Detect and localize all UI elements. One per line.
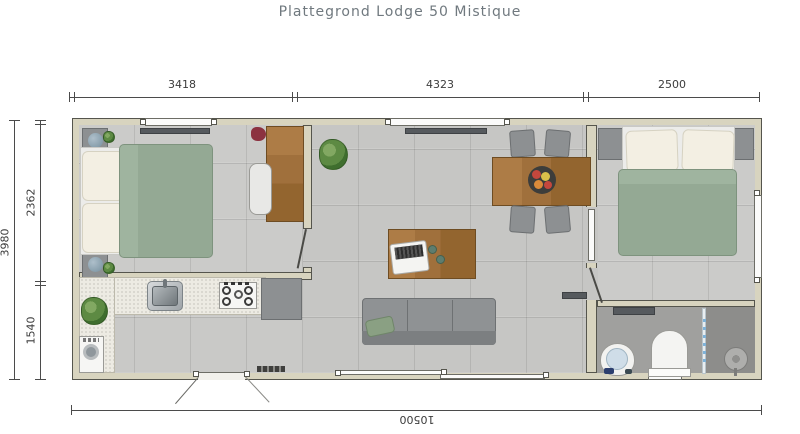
dim-line-top	[70, 97, 760, 98]
wall-bathroom-top	[597, 300, 755, 307]
window-jamb	[754, 190, 760, 196]
tick	[35, 285, 46, 286]
toilet-cistern	[648, 368, 691, 377]
sofa-seam	[452, 300, 453, 331]
dim-line-left-segments	[40, 120, 41, 380]
wall-bedroom-left-living	[303, 125, 312, 229]
window-jamb	[385, 119, 391, 125]
window-jamb	[193, 371, 199, 377]
burner	[222, 297, 231, 306]
window-bedroom-right	[754, 195, 762, 278]
dim-top-1: 3418	[152, 78, 212, 91]
bath-accessory	[625, 369, 632, 374]
burner	[222, 286, 231, 295]
washer-controls	[83, 338, 99, 342]
desk-chair	[249, 163, 272, 215]
bath-accessory	[604, 368, 614, 374]
tick	[588, 92, 589, 102]
dining-chair	[544, 129, 571, 158]
tick	[9, 120, 20, 121]
burner	[244, 297, 253, 306]
burner	[244, 286, 253, 295]
dim-left-total: 3980	[0, 213, 12, 273]
washer-door	[83, 344, 99, 360]
fruit	[534, 180, 543, 189]
hob-knobs	[224, 282, 252, 285]
entry-door-swing	[245, 376, 270, 402]
plant-kitchen	[81, 297, 108, 325]
tick	[71, 405, 72, 415]
nightstand	[598, 128, 625, 160]
sink-basin	[152, 286, 178, 306]
tick	[9, 379, 20, 380]
plant-sprig	[103, 131, 115, 143]
plant-living	[319, 139, 348, 170]
window-jamb	[244, 371, 250, 377]
fruit	[532, 170, 541, 179]
dim-bottom-total: 10500	[387, 413, 447, 426]
dining-chair	[509, 205, 536, 234]
pillow	[82, 203, 124, 253]
red-decor	[251, 127, 266, 141]
tick	[74, 92, 75, 102]
plant-sprig	[103, 262, 115, 274]
fruit	[544, 181, 552, 189]
door-panel-bedroom-right	[588, 209, 595, 261]
burner	[234, 290, 243, 299]
pillow	[681, 129, 734, 173]
page-title: Plattegrond Lodge 50 Mistique	[0, 4, 800, 20]
radiator	[140, 128, 210, 134]
towel-rail	[613, 307, 655, 315]
dim-top-3: 2500	[642, 78, 702, 91]
floorplan-canvas: Plattegrond Lodge 50 Mistique 3418 4323 …	[0, 0, 800, 434]
dim-line-bottom	[72, 410, 762, 411]
cup	[428, 245, 437, 254]
tick	[69, 92, 70, 102]
sliding-window-panel-2	[440, 374, 545, 379]
pillow	[625, 129, 678, 173]
window-living	[390, 118, 505, 126]
window-jamb	[441, 369, 447, 375]
cup	[436, 255, 445, 264]
entry-door-leaf	[175, 377, 199, 404]
toilet	[651, 330, 688, 372]
fruit	[541, 172, 550, 181]
dim-top-2: 4323	[410, 78, 470, 91]
sofa-seam	[407, 300, 408, 331]
window-jamb	[140, 119, 146, 125]
fridge	[261, 278, 302, 320]
window-jamb	[211, 119, 217, 125]
shower-arm	[734, 368, 737, 376]
entry-door-opening	[198, 372, 245, 380]
window-bedroom-left	[145, 118, 212, 126]
tick	[35, 379, 46, 380]
dim-left-upper: 2362	[25, 173, 38, 233]
tick	[35, 281, 46, 282]
faucet	[163, 279, 167, 288]
dim-left-lower: 1540	[25, 301, 38, 361]
bed-left-duvet	[119, 144, 213, 258]
washbasin-bowl	[606, 348, 628, 370]
window-jamb	[504, 119, 510, 125]
window-jamb	[543, 372, 549, 378]
dining-chair	[544, 205, 571, 234]
vase	[88, 133, 103, 148]
vase	[88, 257, 103, 272]
tick	[35, 124, 46, 125]
tick	[761, 405, 762, 415]
tick	[297, 92, 298, 102]
bed-right-duvet	[618, 169, 737, 256]
tick	[35, 120, 46, 121]
pillow	[82, 151, 124, 201]
glass-decor	[703, 318, 706, 362]
radiator	[405, 128, 487, 134]
tick	[759, 92, 760, 102]
window-jamb	[335, 370, 341, 376]
tick	[292, 92, 293, 102]
sliding-window-panel-1	[340, 370, 445, 375]
dim-line-left-total	[14, 120, 15, 380]
radiator	[562, 292, 587, 299]
window-jamb	[754, 277, 760, 283]
dining-chair	[509, 129, 536, 158]
floor-vent	[257, 366, 285, 372]
tick	[583, 92, 584, 102]
